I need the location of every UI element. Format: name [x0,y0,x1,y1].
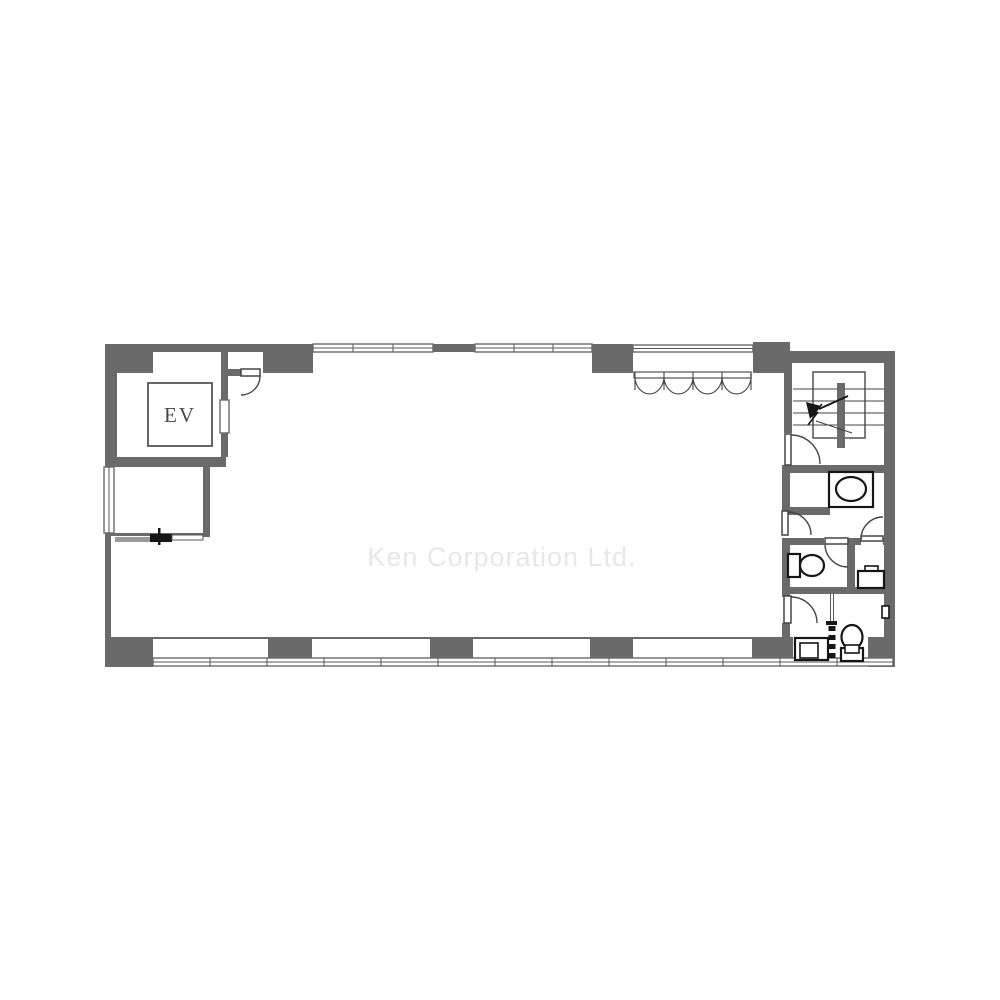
elevator-label: EV [164,403,196,427]
door-lavatory [784,596,817,623]
window-balcony [633,345,753,352]
wall-fixture [882,606,889,618]
drain-pan-icon [795,638,828,660]
watermark: Ken Corporation Ltd. [367,542,636,572]
folding-partition [634,372,751,394]
floorplan-page: EV [0,0,1000,1000]
window-top-left [313,344,433,352]
utility-sink-icon [858,566,884,588]
elevator-door-opening [220,400,229,433]
toilet-icon-south [841,625,863,661]
walls [105,342,895,667]
toilet-icon-west [788,554,824,577]
door-elevator-hall [241,369,260,395]
sliding-door [108,528,210,545]
wash-basin-icon [829,472,873,507]
elevator: EV [148,383,212,446]
window-top-right [475,344,592,352]
staircase [793,372,884,448]
window-bottom-band [153,658,893,666]
window-left [104,467,114,533]
door-utility-room [861,517,883,541]
fixtures [788,472,889,661]
stair-center-wall [837,383,845,448]
floorplan-svg: EV [0,0,1000,1000]
door-toilet [825,538,848,567]
